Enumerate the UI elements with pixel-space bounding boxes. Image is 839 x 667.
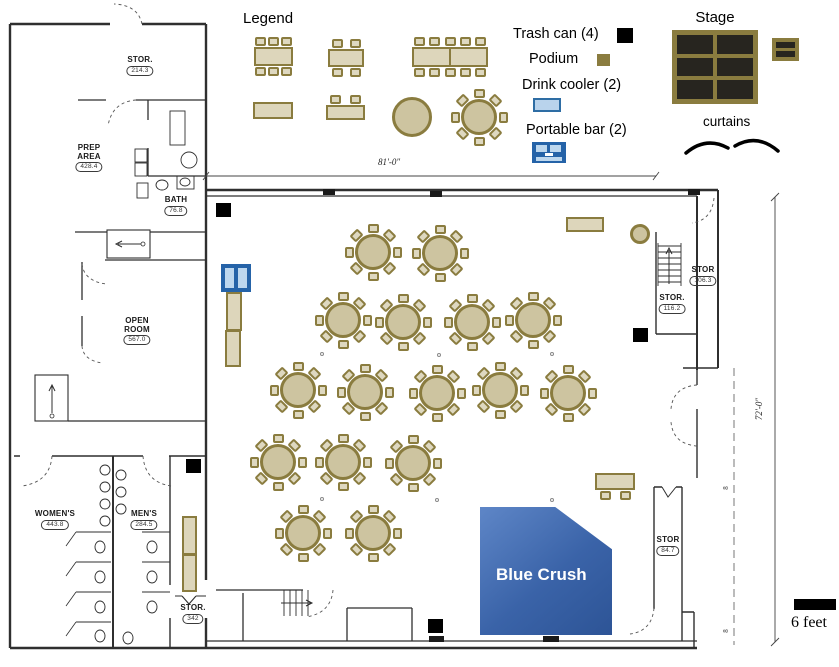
room-name: WOMEN'S	[35, 510, 75, 519]
room-name: STOR	[656, 536, 679, 545]
room-area: 84.7	[656, 546, 679, 556]
room-name: STOR.	[659, 294, 686, 303]
event-floor-plan: Legend Trash can (4) Podium Drink cooler…	[0, 0, 839, 667]
room-area: 214.3	[126, 66, 153, 76]
room-labels-layer: STOR.214.3PREPAREA428.4BATH76.8OPENROOM5…	[0, 0, 839, 667]
room-label: STOR106.3	[689, 266, 716, 286]
room-label: PREPAREA428.4	[75, 144, 102, 172]
room-label: BATH76.8	[164, 196, 187, 216]
room-label: OPENROOM567.0	[123, 317, 150, 345]
room-label: STOR.214.3	[126, 56, 153, 76]
room-name: MEN'S	[130, 510, 157, 519]
room-name: AREA	[75, 153, 102, 162]
room-label: STOR.342	[180, 604, 205, 624]
room-label: STOR.116.2	[659, 294, 686, 314]
room-label: MEN'S284.5	[130, 510, 157, 530]
room-area: 116.2	[659, 304, 686, 314]
room-name: STOR.	[126, 56, 153, 65]
room-area: 106.3	[689, 276, 716, 286]
room-label: STOR84.7	[656, 536, 679, 556]
room-area: 443.8	[41, 520, 68, 530]
room-area: 76.8	[164, 206, 187, 216]
room-area: 284.5	[130, 520, 157, 530]
room-name: ROOM	[123, 326, 150, 335]
room-area: 342	[182, 614, 203, 624]
room-name: STOR.	[180, 604, 205, 613]
room-area: 567.0	[123, 335, 150, 345]
room-area: 428.4	[75, 162, 102, 172]
room-name: STOR	[689, 266, 716, 275]
room-label: WOMEN'S443.8	[35, 510, 75, 530]
room-name: BATH	[164, 196, 187, 205]
